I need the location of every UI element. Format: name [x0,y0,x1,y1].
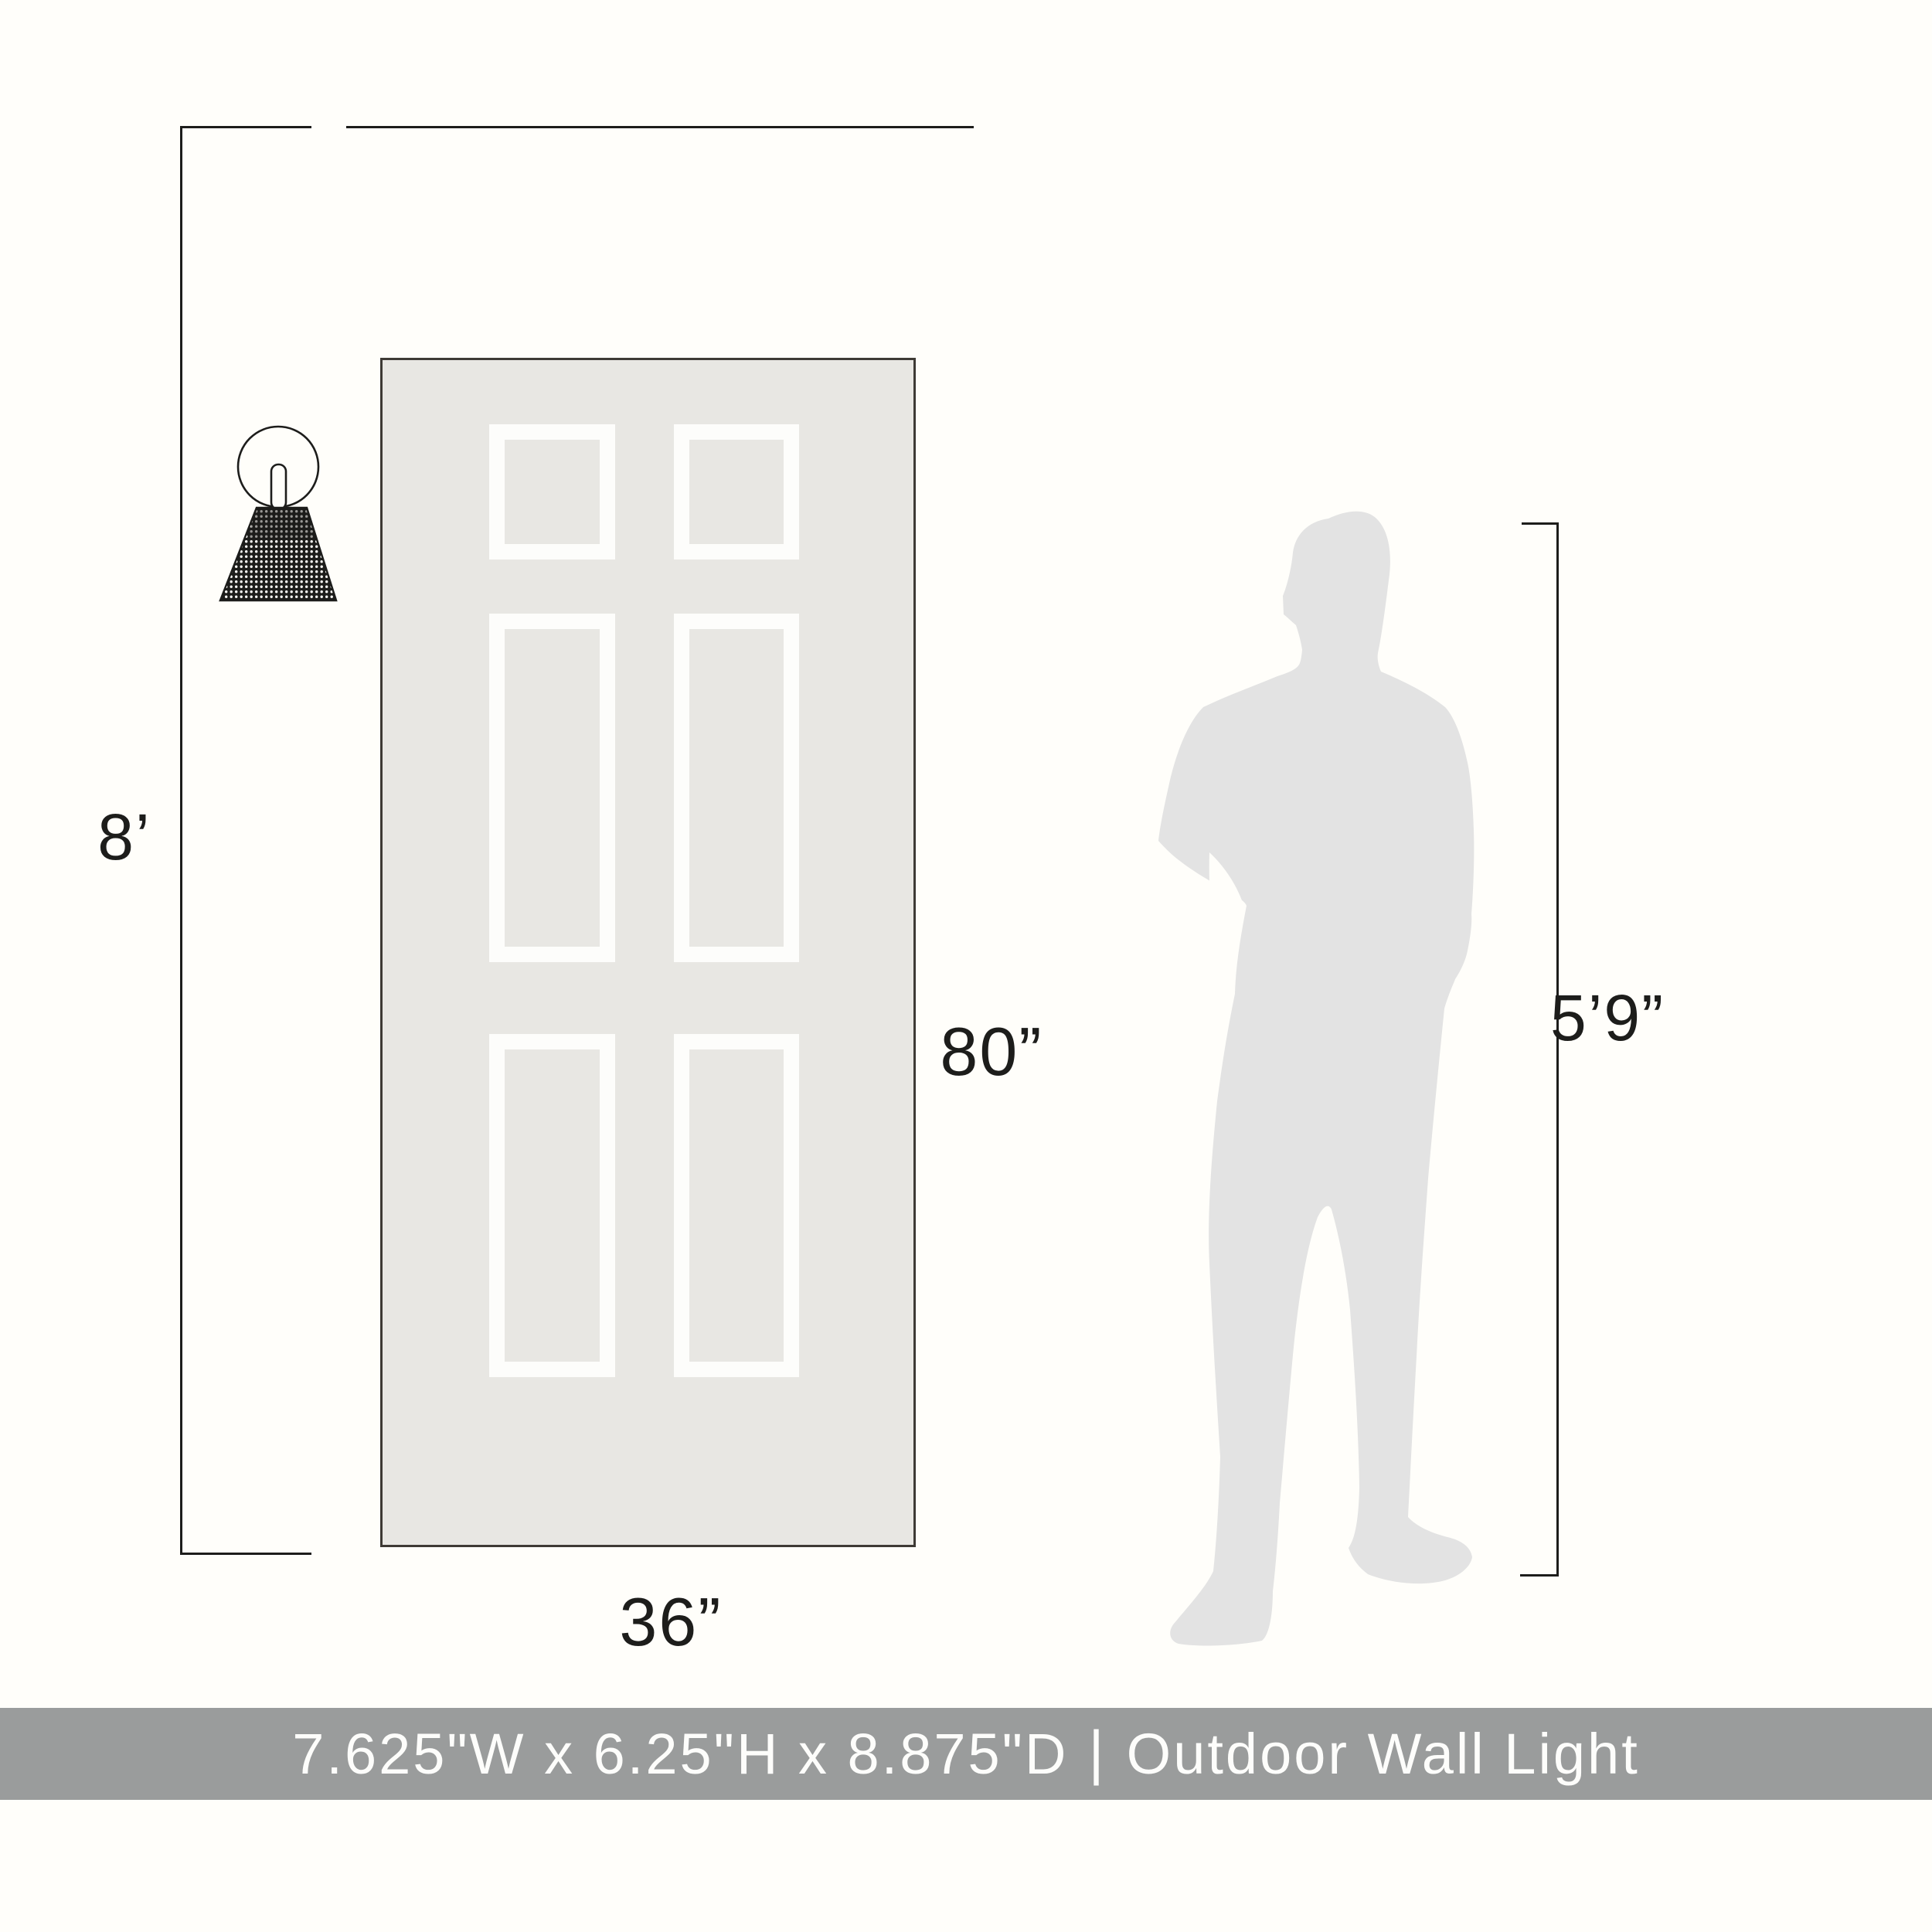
bracket-bottom-tick [180,1553,311,1555]
door-panel [674,614,799,962]
bracket-top-tick [1522,522,1559,525]
door-panel-inset [689,1049,784,1362]
door-illustration [380,358,916,1547]
person-silhouette [1155,498,1480,1650]
spec-banner: 7.625"W x 6.25"H x 8.875"D | Outdoor Wal… [0,1708,1932,1800]
door-panel [489,614,615,962]
product-dimensions-text: 7.625"W x 6.25"H x 8.875"D [292,1721,1068,1787]
sconce-socket-icon [271,464,286,509]
door-width-label: 36” [586,1583,756,1662]
door-panel [674,1034,799,1377]
door-panel [674,424,799,560]
banner-divider: | [1068,1717,1126,1787]
size-comparison-diagram: 8’ 80” 36” 5’9” 7.625"W x 6.25"H x 8. [0,0,1932,1932]
sconce-shade-top-band [247,508,317,539]
bracket-bottom-tick [1520,1574,1559,1577]
door-panel-inset [689,440,784,544]
bracket-top-tick [180,126,311,128]
ceiling-reference-line [346,126,974,128]
door-panel [489,424,615,560]
person-height-label: 5’9” [1550,981,1720,1056]
door-panel-inset [505,1049,600,1362]
product-name-text: Outdoor Wall Light [1127,1721,1640,1787]
door-panel-inset [689,629,784,947]
door-panel [489,1034,615,1377]
door-panel-inset [505,440,600,544]
door-panel-inset [505,629,600,947]
wall-sconce-icon [209,413,363,614]
ceiling-height-label: 8’ [39,800,209,875]
door-height-label: 80” [906,1012,1077,1091]
